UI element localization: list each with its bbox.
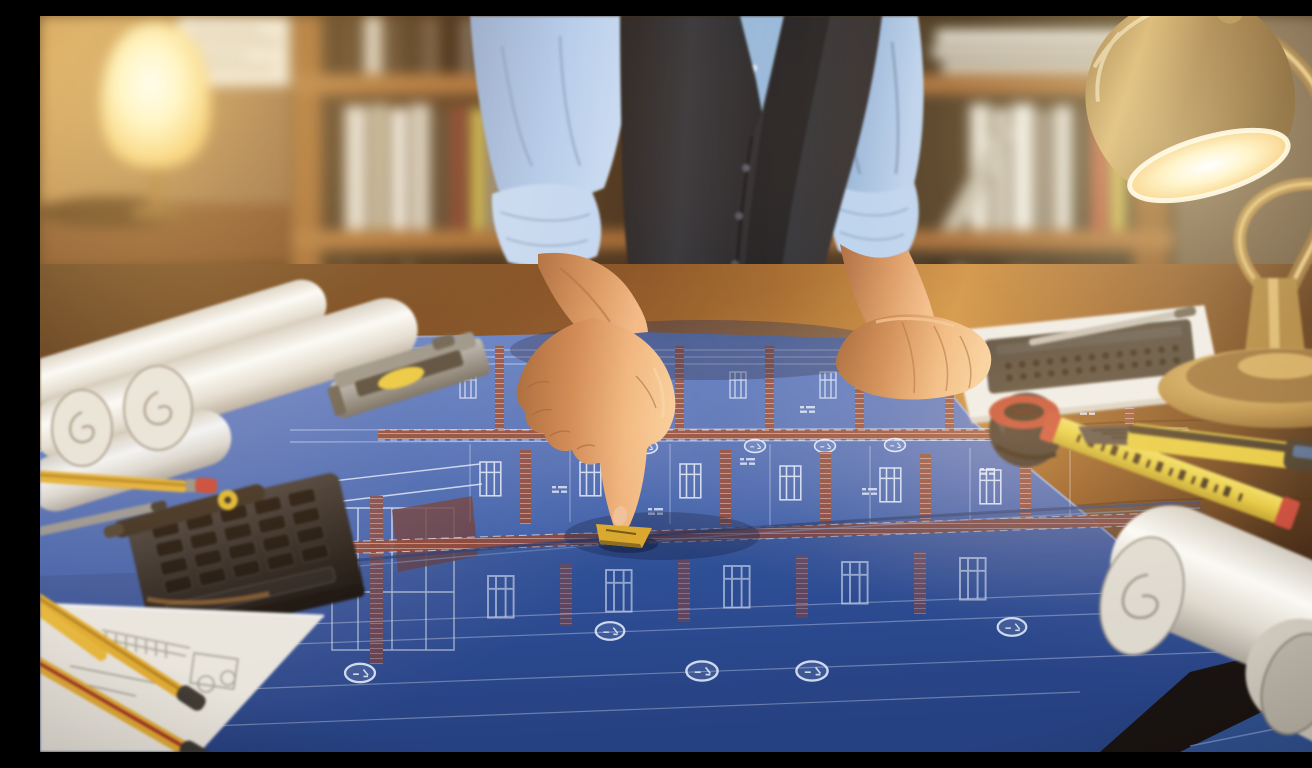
lamp-glow-right	[40, 16, 1312, 752]
pointing-hand	[517, 318, 676, 530]
upper-modules	[460, 346, 1176, 430]
framed-sketch	[178, 16, 296, 86]
folding-ruler	[1039, 411, 1301, 531]
desk-and-blueprint	[40, 16, 1312, 752]
room-floor-shadow	[40, 334, 1312, 404]
sketch-paper	[40, 604, 324, 752]
calculator-keys	[151, 488, 330, 595]
pencils-on-paper	[40, 566, 213, 752]
torso-shadow	[510, 320, 900, 380]
left-structure	[286, 464, 482, 664]
books-mid-right	[900, 98, 1134, 230]
resting-hand	[836, 314, 991, 399]
desk-tools	[40, 16, 1312, 752]
side-table	[40, 196, 308, 346]
calculator	[125, 471, 366, 645]
gray-pen	[40, 500, 168, 540]
desk-lamp-head-layer	[40, 16, 1312, 752]
hand-shadow	[564, 512, 760, 560]
vignette	[40, 16, 1312, 752]
foreground-modules	[488, 552, 986, 626]
pencil-red-eraser	[40, 466, 218, 495]
resting-forearm	[840, 244, 936, 340]
pointing-forearm	[538, 253, 648, 338]
desk-wood	[40, 264, 1312, 752]
bookshelf	[290, 16, 1175, 354]
desk-light-pool	[40, 16, 1312, 752]
blueprint-drawing	[40, 346, 1312, 752]
middle-modules	[470, 444, 1070, 528]
background-room	[40, 16, 1312, 752]
blueprint-sheet	[40, 332, 1312, 752]
right-sleeve	[796, 16, 924, 260]
shirt-collar	[692, 16, 828, 114]
corner-shadow	[1100, 632, 1312, 752]
books-bottom-right	[906, 254, 1132, 348]
sheet-seam	[276, 502, 1200, 568]
vest	[620, 16, 882, 336]
hand-light-pool	[40, 16, 1312, 752]
books-bottom-left	[326, 256, 506, 348]
warm-glow-left	[40, 16, 1312, 752]
roll-end-spirals	[52, 366, 192, 466]
desk-lamp-head	[1058, 16, 1312, 221]
architect-arms	[40, 16, 1312, 752]
desk-lamp-base	[1158, 30, 1312, 428]
tape-measure	[989, 393, 1072, 467]
architect-torso	[40, 16, 1312, 752]
pocket-calculator	[983, 318, 1197, 394]
utility-knife	[1076, 413, 1312, 474]
pen	[1028, 306, 1197, 347]
brass-fitting	[596, 524, 652, 548]
utility-tool-black	[102, 481, 268, 543]
wall	[40, 16, 1312, 476]
left-sleeve	[470, 16, 632, 267]
books-top-left	[328, 16, 475, 74]
table-lamp	[101, 22, 211, 220]
architect-blueprint-photo	[40, 16, 1312, 752]
wood-grain	[920, 354, 1312, 616]
corner-blueprint	[1180, 692, 1312, 752]
marking-gauge	[322, 325, 492, 420]
notepad	[949, 304, 1223, 424]
paper-rolls-left	[40, 250, 439, 518]
books-mid-left	[326, 102, 504, 232]
books-top-right	[920, 16, 1130, 74]
paper-rolls-right	[1087, 487, 1312, 752]
